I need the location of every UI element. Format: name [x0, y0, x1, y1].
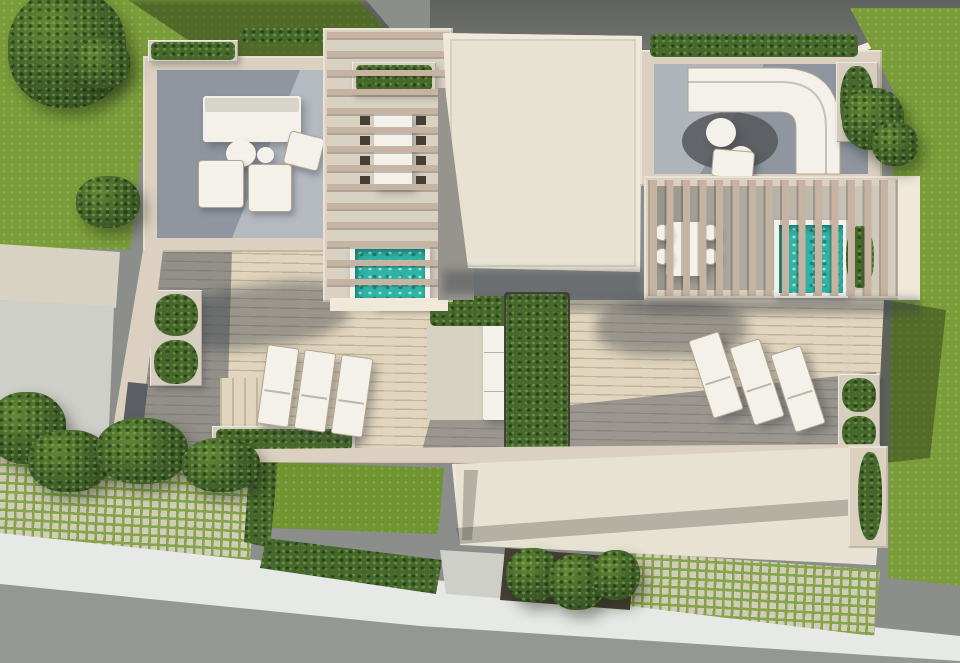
shrub-southeast-wall	[858, 452, 882, 540]
main-roof-drop-shadow	[443, 270, 643, 294]
coffee-table-round-1	[706, 118, 736, 147]
hedge-north-terrace-1	[151, 42, 235, 60]
planter-west-shrub-1	[154, 294, 198, 336]
pergola-east-slats	[648, 180, 916, 296]
hedge-north-terrace-2	[240, 28, 332, 43]
stone-pad	[427, 322, 483, 420]
main-roof-slab	[443, 32, 643, 274]
aerial-render	[0, 0, 960, 663]
tree-west-mid	[76, 176, 140, 228]
tree-south-bed-3	[592, 550, 640, 600]
tree-southwest-4	[182, 438, 260, 492]
hedge-north-terrace-east	[650, 34, 858, 57]
pergola-north-threshold	[330, 298, 448, 311]
planter-east-shrub-2	[842, 416, 876, 449]
hedge-wall-central	[506, 294, 568, 456]
shrub-east-lawn-2	[872, 122, 918, 166]
armchair-northwest-1	[198, 160, 244, 208]
sectional-sofa-curved	[676, 62, 852, 180]
front-garden-lawn	[266, 458, 446, 540]
tree-southwest-3	[96, 418, 188, 484]
pergola-north-slats	[327, 32, 449, 298]
side-band-west	[0, 244, 122, 308]
sofa-northwest-back	[205, 98, 299, 112]
side-table-round	[257, 147, 274, 163]
armchair-northwest-2	[248, 164, 292, 212]
planter-west-shrub-2	[154, 340, 198, 384]
planter-east-shrub-1	[842, 378, 876, 412]
pergola-east-drop-shadow	[644, 298, 920, 314]
pergola-east-parapet-sunlit	[898, 176, 920, 300]
tree-northwest-small-blob	[72, 38, 130, 88]
